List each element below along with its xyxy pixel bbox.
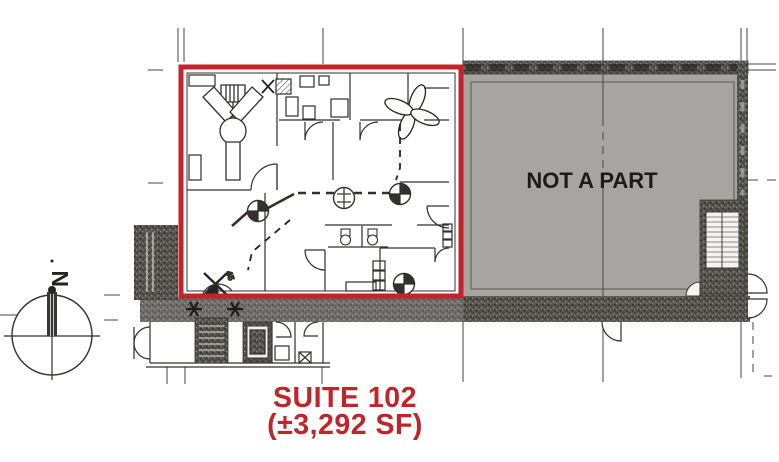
suite-area-label: (±3,292 SF) bbox=[267, 409, 423, 441]
left-wall-block bbox=[134, 225, 178, 300]
hatched-door-panel bbox=[276, 79, 291, 94]
suite-label: SUITE 102 (±3,292 SF) bbox=[267, 382, 423, 441]
top-wall bbox=[463, 61, 748, 74]
not-a-part-label: NOT A PART bbox=[526, 168, 658, 193]
compass-north-label: N bbox=[47, 270, 73, 287]
elevator-symbol bbox=[299, 352, 311, 363]
bottom-wall-right bbox=[463, 296, 750, 322]
floor-plan-canvas: 45 bbox=[0, 0, 779, 462]
compass-needle bbox=[47, 292, 57, 336]
floor-plan-drawing: 45 bbox=[0, 0, 779, 462]
